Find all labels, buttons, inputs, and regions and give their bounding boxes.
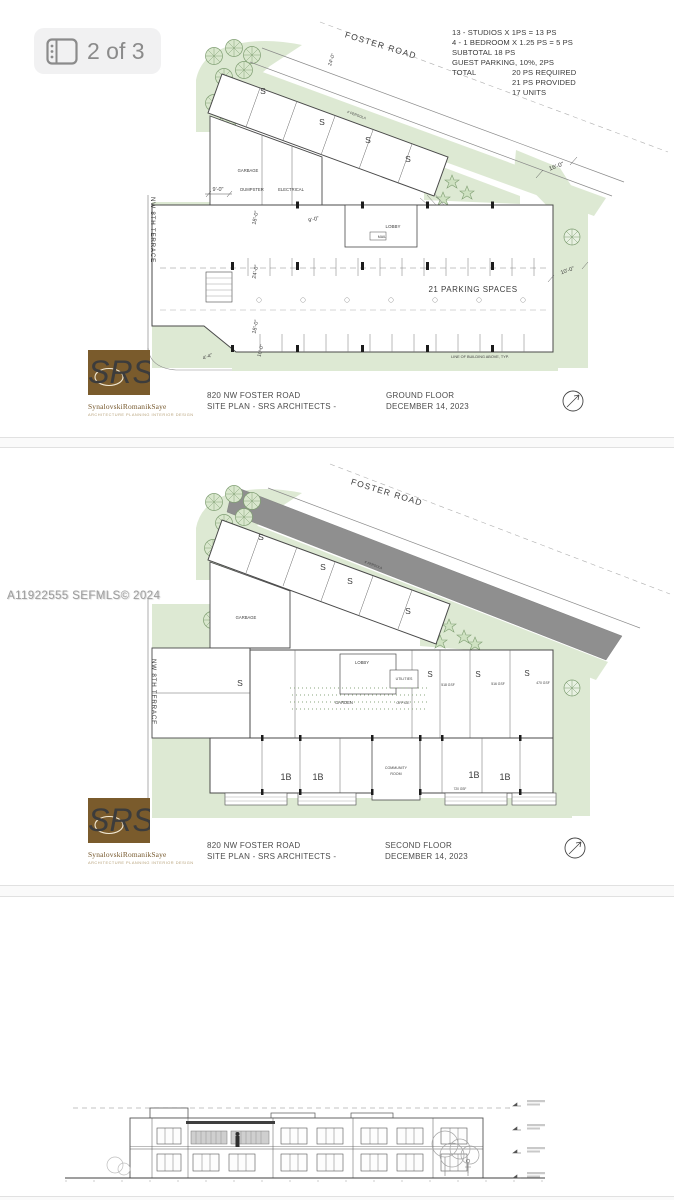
building-outline — [152, 520, 556, 805]
parking-summary-line: 13 - STUDIOS X 1PS = 13 PS — [452, 28, 573, 38]
firm-name: SynalovskiRomanikSaye — [88, 850, 188, 859]
unit-area-label: 516 GSF — [491, 682, 505, 686]
dimension: 9'-0" — [213, 187, 224, 193]
community-room-label: ROOM — [390, 772, 401, 776]
parking-summary-totals: 20 PS REQUIRED 21 PS PROVIDED 17 UNITS — [512, 68, 576, 98]
one-bed-unit-label: 1B — [468, 770, 479, 780]
studio-unit-label: S — [347, 576, 353, 586]
photo-count-badge[interactable]: 2 of 3 — [34, 28, 161, 74]
dimension: 24'-0" — [327, 52, 337, 66]
lobby-label: LOBBY — [385, 224, 400, 229]
photo-count-label: 2 of 3 — [87, 38, 145, 65]
srs-logo-mark: SRS — [88, 798, 150, 843]
mail-label: MAIL — [378, 235, 386, 239]
community-room-label: COMMUNITY — [385, 766, 408, 770]
title-block-right: SECOND FLOOR DECEMBER 14, 2023 — [385, 840, 468, 862]
photo-divider — [0, 885, 674, 897]
second-floor-photo: FOSTER ROAD NW 8TH TERRACE 4' PERGOLA S … — [0, 448, 674, 885]
photo-divider — [0, 1196, 674, 1200]
street-label-nw-8th-terrace: NW 8TH TERRACE — [150, 659, 157, 725]
one-bed-unit-label: 1B — [280, 772, 291, 782]
street-label-foster-road: FOSTER ROAD — [344, 29, 418, 60]
plan-line: SITE PLAN - SRS ARCHITECTS - — [207, 401, 336, 412]
garbage-room-label: GARBAGE — [236, 615, 257, 620]
title-block-left: 820 NW FOSTER ROAD SITE PLAN - SRS ARCHI… — [207, 840, 336, 862]
srs-monogram: SRS — [88, 802, 150, 838]
studio-unit-label: S — [320, 562, 326, 572]
parking-summary-line: SUBTOTAL 18 PS — [452, 48, 573, 58]
title-block-left: 820 NW FOSTER ROAD SITE PLAN - SRS ARCHI… — [207, 390, 336, 412]
north-arrow — [565, 838, 585, 858]
plan-line: SITE PLAN - SRS ARCHITECTS - — [207, 851, 336, 862]
garden-label: GARDEN — [335, 700, 353, 705]
photo-divider — [0, 437, 674, 448]
studio-unit-label: S — [405, 154, 411, 164]
studio-unit-label: S — [365, 135, 371, 145]
north-arrow — [563, 391, 583, 411]
srs-logo: SRS SynalovskiRomanikSaye ARCHITECTURE P… — [88, 798, 188, 865]
srs-logo-mark: SRS — [88, 350, 150, 395]
building-elevation-drawing — [0, 897, 674, 1196]
elevation-photo — [0, 897, 674, 1196]
street-label-foster-road: FOSTER ROAD — [350, 476, 424, 507]
parking-summary-line: 21 PS PROVIDED — [512, 78, 576, 88]
one-bed-unit-label: 1B — [312, 772, 323, 782]
studio-unit-label: S — [260, 86, 266, 96]
studio-unit-label: S — [237, 678, 243, 688]
firm-tagline: ARCHITECTURE PLANNING INTERIOR DESIGN — [88, 860, 188, 865]
dumpster-room-label: DUMPSTER — [240, 187, 264, 192]
one-bed-unit-label: 1B — [499, 772, 510, 782]
elevation-level-markers — [513, 1100, 545, 1178]
floor-name: GROUND FLOOR — [386, 390, 469, 401]
studio-unit-label: S — [258, 532, 264, 542]
plan-date: DECEMBER 14, 2023 — [386, 401, 469, 412]
title-block-right: GROUND FLOOR DECEMBER 14, 2023 — [386, 390, 469, 412]
unit-area-label: 518 GSF — [441, 683, 455, 687]
plan-date: DECEMBER 14, 2023 — [385, 851, 468, 862]
parking-spaces-label: 21 PARKING SPACES — [428, 285, 517, 294]
srs-monogram: SRS — [88, 354, 150, 390]
parking-summary-line: GUEST PARKING, 10%, 2PS — [452, 58, 573, 68]
srs-logo: SRS SynalovskiRomanikSaye ARCHITECTURE P… — [88, 350, 188, 417]
electrical-room-label: ELECTRICAL — [278, 187, 305, 192]
garbage-room-label: GARBAGE — [238, 168, 259, 173]
studio-unit-label: S — [319, 117, 325, 127]
studio-unit-label: S — [475, 670, 480, 679]
floor-name: SECOND FLOOR — [385, 840, 468, 851]
parking-summary-line: 17 UNITS — [512, 88, 576, 98]
studio-unit-label: S — [524, 669, 529, 678]
address: 820 NW FOSTER ROAD — [207, 390, 336, 401]
gallery-icon — [46, 38, 78, 65]
parking-summary-line: 4 - 1 BEDROOM X 1.25 PS = 5 PS — [452, 38, 573, 48]
ground-line — [65, 1178, 545, 1181]
unit-area-label: 720 GSF — [454, 787, 467, 791]
studio-unit-label: S — [427, 670, 432, 679]
parking-summary-line: 20 PS REQUIRED — [512, 68, 576, 78]
address: 820 NW FOSTER ROAD — [207, 840, 336, 851]
listing-photo-page: FOSTER ROAD NW 8TH TERRACE S S S S 4' PE… — [0, 0, 674, 1200]
street-label-nw-8th-terrace: NW 8TH TERRACE — [149, 197, 156, 263]
unit-area-label: 470 GSF — [536, 681, 550, 685]
lobby-label: LOBBY — [355, 660, 369, 665]
office-label: OFFICE — [396, 701, 410, 705]
firm-tagline: ARCHITECTURE PLANNING INTERIOR DESIGN — [88, 412, 188, 417]
utilities-label: UTILITIES — [396, 677, 413, 681]
studio-unit-label: S — [405, 606, 411, 616]
mls-watermark: A11922555 SEFMLS© 2024 — [7, 590, 160, 602]
building-above-note: LINE OF BUILDING ABOVE, TYP. — [451, 355, 509, 359]
firm-name: SynalovskiRomanikSaye — [88, 402, 188, 411]
